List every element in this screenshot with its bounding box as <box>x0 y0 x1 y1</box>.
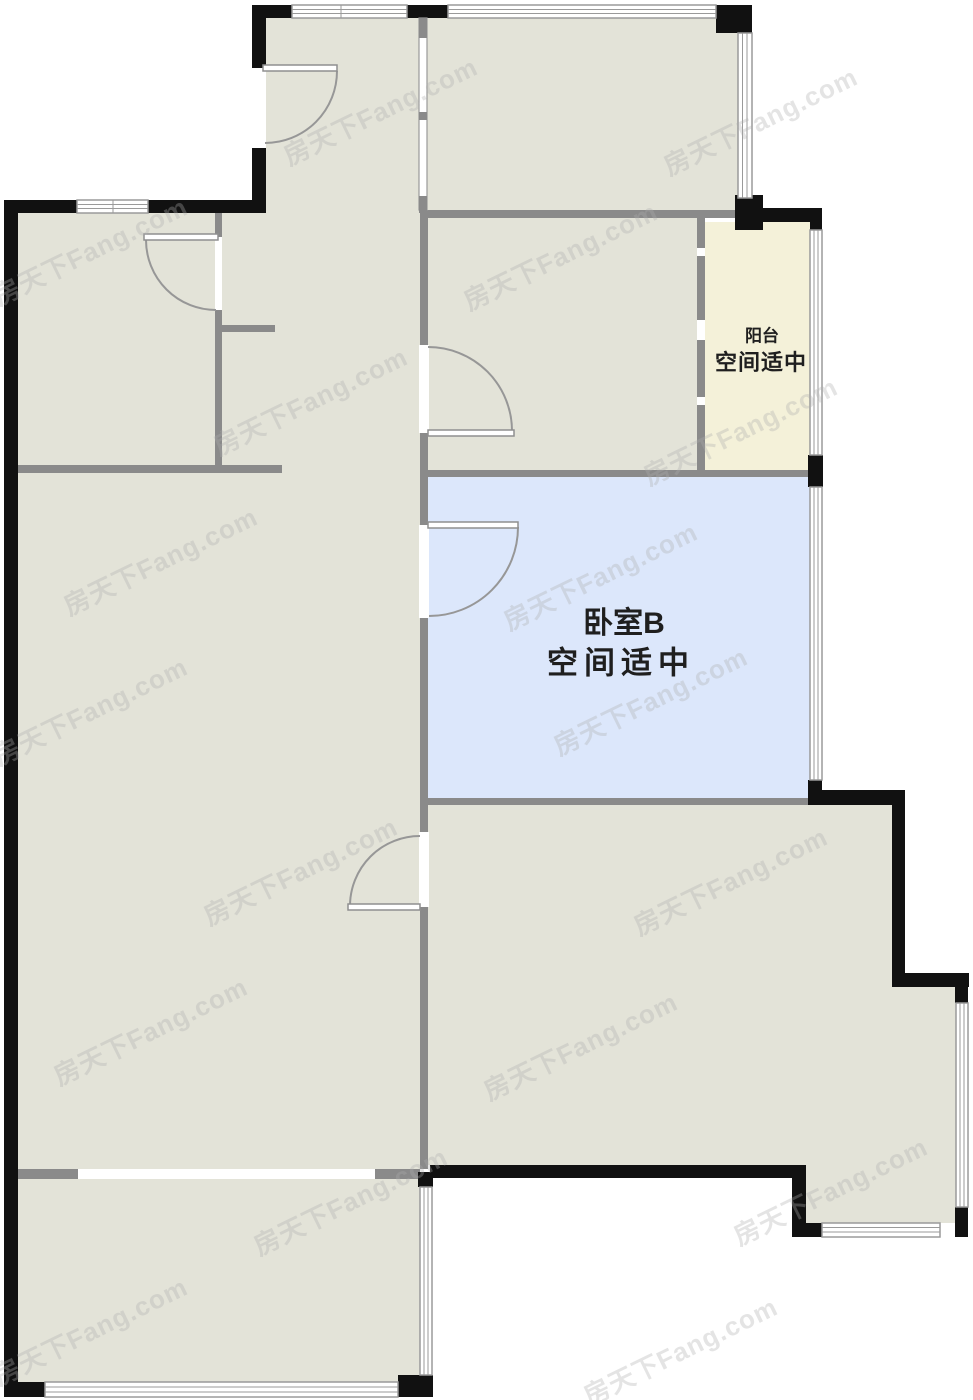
wall-segment <box>215 310 222 473</box>
wall-segment <box>792 1178 806 1237</box>
door-opening <box>419 345 429 433</box>
wall-segment <box>222 325 275 332</box>
door-opening <box>419 832 429 907</box>
wall-segment <box>4 200 18 1397</box>
wall-segment <box>252 5 266 68</box>
wall-segment <box>4 1382 45 1397</box>
bedroom-b-label-assessment: 空间适中 <box>547 648 695 679</box>
wall-segment <box>420 213 428 345</box>
wall-segment <box>148 200 266 213</box>
wall-gap <box>697 248 705 256</box>
wall-segment <box>419 196 427 213</box>
door-leaf[interactable] <box>348 904 420 910</box>
wall-segment <box>808 455 823 487</box>
window <box>956 1003 968 1207</box>
window <box>420 1187 432 1375</box>
door-opening <box>252 68 266 148</box>
wall-segment <box>418 1172 433 1187</box>
wall-segment <box>375 1169 420 1179</box>
door-leaf[interactable] <box>263 65 337 71</box>
wall-segment <box>716 5 752 33</box>
balcony-window <box>810 230 822 455</box>
bottom-right-room[interactable] <box>428 805 956 1223</box>
wall-segment <box>428 798 808 805</box>
wide-opening <box>78 1169 375 1179</box>
wall-segment <box>420 907 428 1169</box>
door-leaf[interactable] <box>428 430 514 436</box>
balcony-label-name: 阳台 <box>745 328 779 345</box>
wall-segment <box>955 1207 968 1237</box>
wall-gap <box>697 320 705 340</box>
window <box>292 5 407 18</box>
wall-segment <box>18 1169 78 1179</box>
wall-segment <box>398 1375 433 1397</box>
wall-segment <box>252 148 266 213</box>
balcony-room[interactable] <box>705 222 812 470</box>
wall-segment <box>420 618 428 832</box>
door-opening <box>419 525 429 618</box>
wall-segment <box>955 987 968 1003</box>
window <box>822 1223 940 1237</box>
wall-segment <box>419 112 427 120</box>
wall-segment <box>810 208 822 230</box>
wall-segment <box>407 5 448 18</box>
floorplan: 房天下Fang.com 房天下Fang.com 房天下Fang.com 房天下F… <box>0 0 973 1400</box>
balcony-label-assessment: 空间适中 <box>715 352 807 374</box>
floorplan-svg <box>0 0 973 1400</box>
wall-segment <box>4 200 77 213</box>
wall-segment <box>892 973 969 987</box>
wall-segment <box>427 470 808 477</box>
wall-gap <box>697 397 705 405</box>
door-leaf[interactable] <box>144 234 218 240</box>
wall-segment <box>430 1165 806 1178</box>
top-right-room[interactable] <box>427 18 738 210</box>
wall-segment <box>892 793 905 987</box>
hallway-room[interactable] <box>266 18 419 213</box>
wall-segment <box>427 210 737 218</box>
window <box>738 33 752 198</box>
wall-segment <box>419 18 427 38</box>
bedroom-b-label-name: 卧室B <box>583 609 665 639</box>
door-leaf[interactable] <box>428 522 518 528</box>
wall-segment <box>808 790 905 805</box>
wall-segment <box>735 195 763 230</box>
window <box>448 5 716 18</box>
door-opening <box>215 237 222 310</box>
wall-segment <box>18 465 282 473</box>
bedroom-b-window <box>810 487 822 780</box>
window <box>45 1382 398 1397</box>
wall-segment <box>420 433 428 525</box>
